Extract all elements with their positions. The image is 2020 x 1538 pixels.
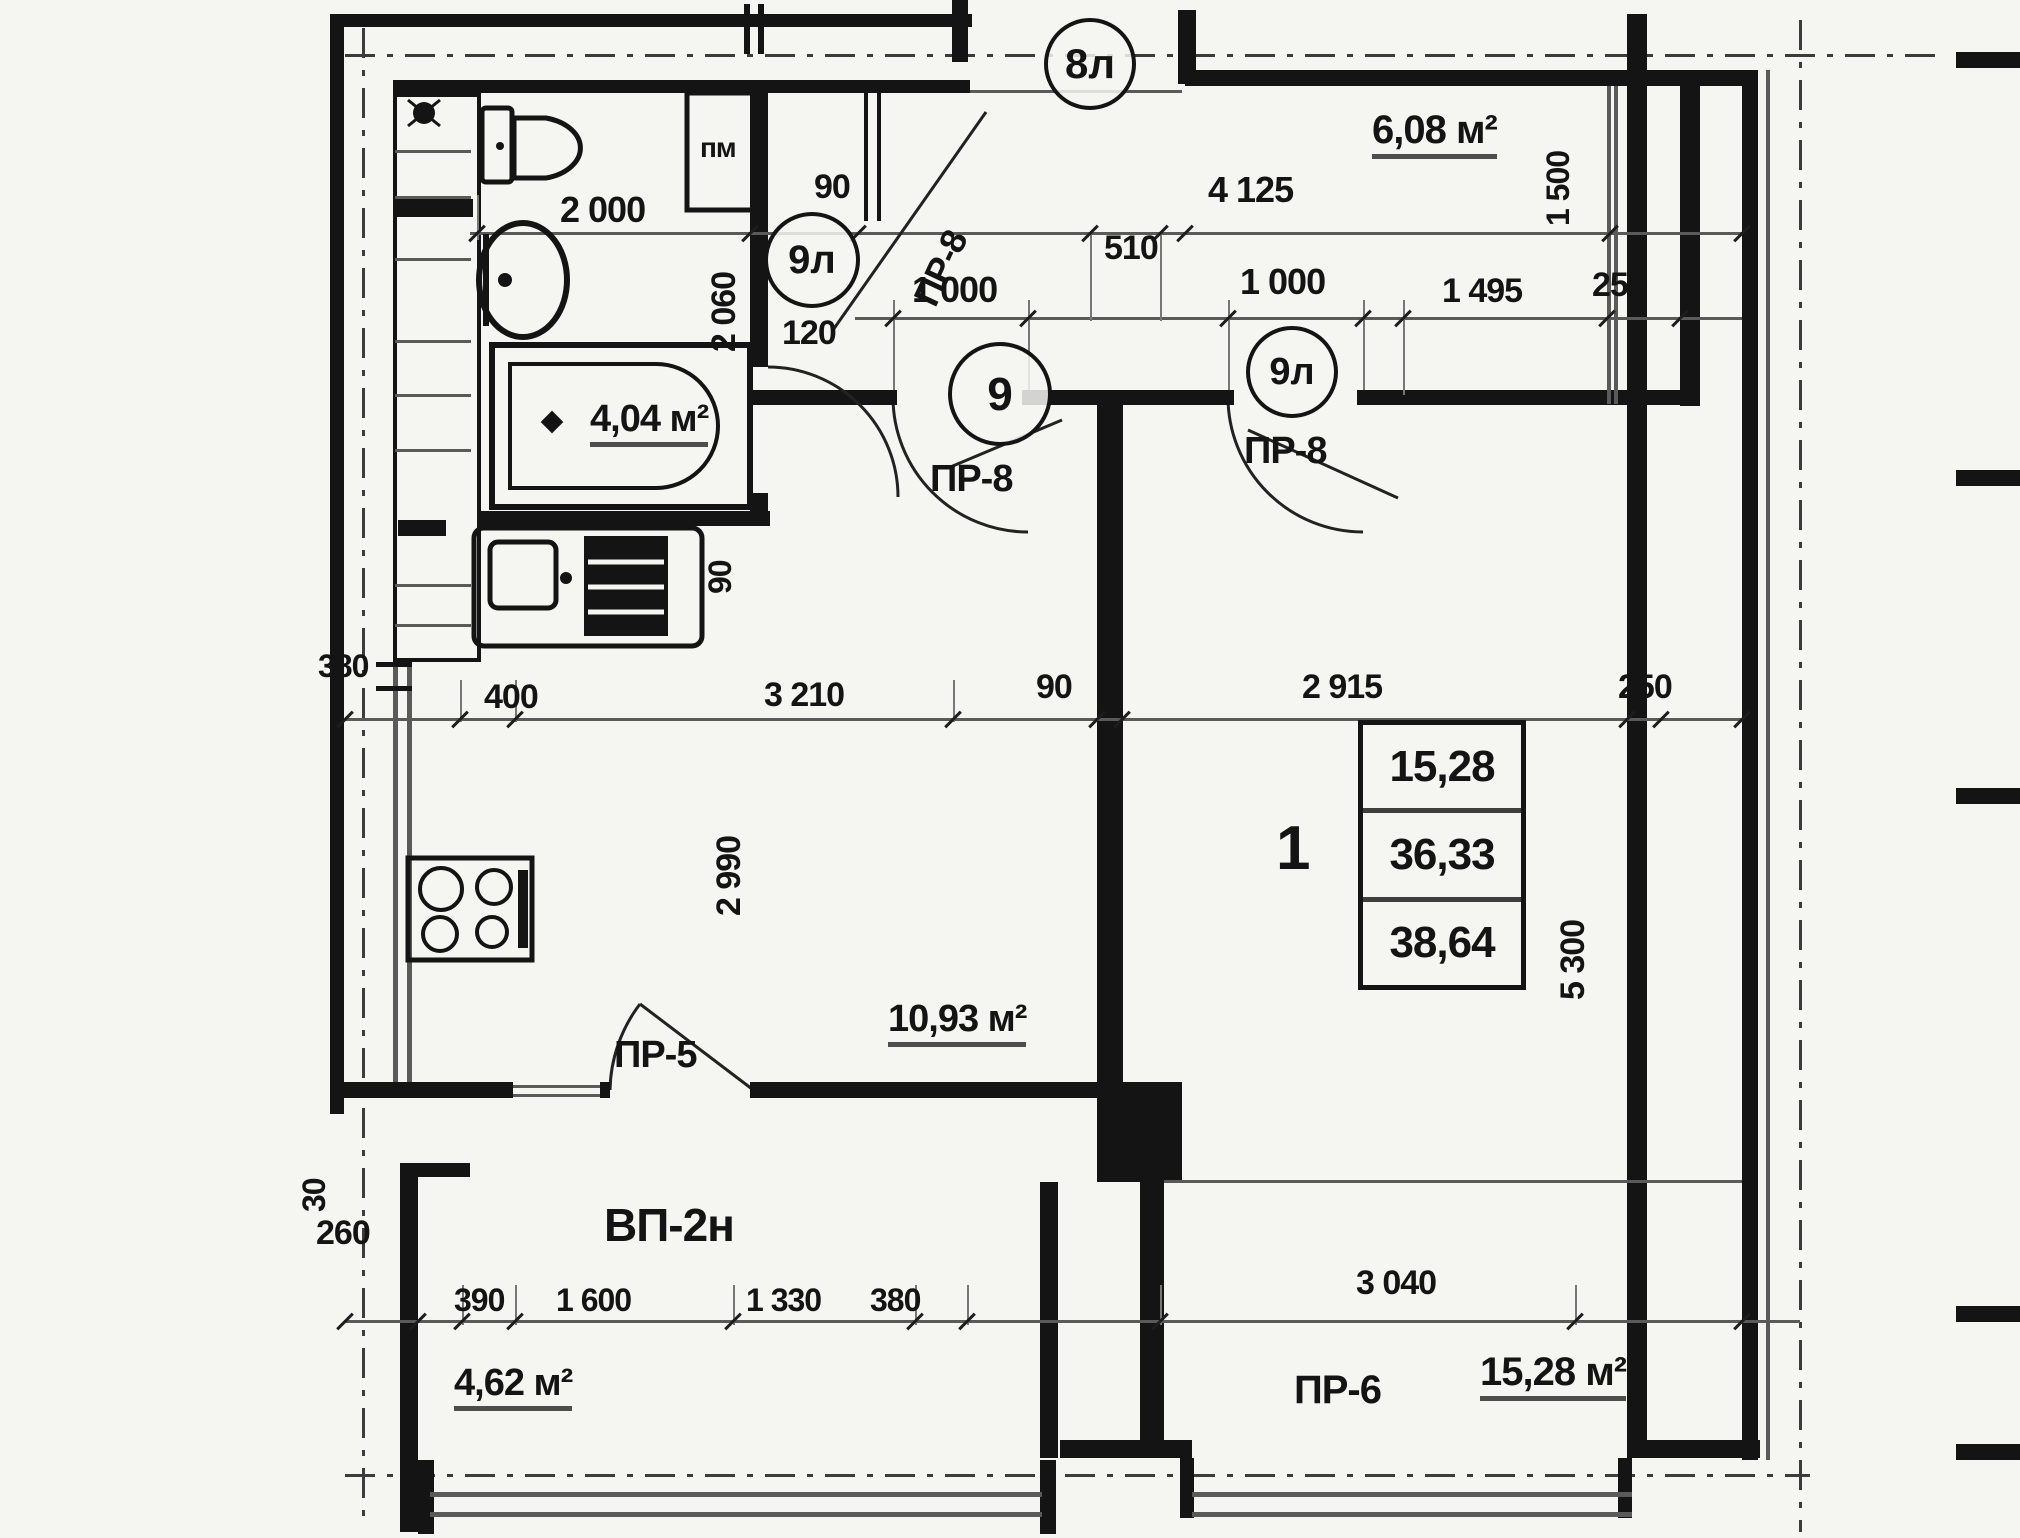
bath-door-arc [768, 367, 898, 497]
dim-90-mid: 90 [1036, 670, 1072, 704]
axis-label: 9л [1269, 351, 1314, 394]
dim-510: 510 [1104, 231, 1158, 265]
dim-30: 30 [298, 1178, 330, 1212]
area-table-overall: 38,64 [1363, 902, 1521, 985]
door-pr6-label: ПР-6 [1294, 1370, 1381, 1410]
dim-380-left: 380 [318, 650, 368, 682]
dim-3040: 3 040 [1356, 1266, 1436, 1300]
area-table-total: 36,33 [1363, 813, 1521, 901]
vent-shaft-icon [408, 100, 440, 126]
floor-plan: 8л 9л 9 9л 2 000 90 4 125 510 1 000 1 00… [0, 0, 2020, 1538]
dim-250-mid: 250 [1618, 670, 1672, 704]
door-arcs [610, 112, 1398, 1092]
dim-250-top: 250 [1592, 268, 1646, 302]
balcony-type-label: ВП-2н [604, 1202, 734, 1248]
dim-380-b: 380 [870, 1284, 920, 1316]
area-balcony: 4,62 м² [454, 1364, 572, 1411]
axis-circle-9l-room: 9л [1246, 326, 1338, 418]
area-table: 15,28 36,33 38,64 [1358, 720, 1526, 990]
dim-2915: 2 915 [1302, 670, 1382, 704]
area-room: 15,28 м² [1480, 1352, 1626, 1401]
dim-3210: 3 210 [764, 678, 844, 712]
area-bathroom: 4,04 м² [590, 400, 708, 447]
washing-machine-label: пм [700, 134, 736, 162]
sink-icon [479, 223, 567, 337]
area-loggia: 6,08 м² [1372, 110, 1497, 159]
area-table-living: 15,28 [1363, 725, 1521, 813]
dim-400: 400 [484, 680, 538, 714]
dim-1000-right: 1 000 [1240, 264, 1325, 300]
stove-icon [408, 858, 532, 960]
dim-1330: 1 330 [746, 1284, 821, 1316]
dim-2060: 2 060 [707, 272, 741, 352]
axis-label: 8л [1065, 40, 1115, 88]
dim-2000: 2 000 [560, 192, 645, 228]
dim-4125: 4 125 [1208, 172, 1293, 208]
dim-90-top: 90 [814, 170, 850, 204]
dim-90-sink: 90 [704, 560, 736, 594]
door-pr8-room-label: ПР-8 [1244, 432, 1326, 470]
axis-label: 9л [788, 238, 836, 283]
dim-260: 260 [316, 1216, 370, 1250]
dim-1495: 1 495 [1442, 274, 1522, 308]
dim-1500: 1 500 [1542, 151, 1574, 226]
door-pr8-hall-label: ПР-8 [930, 460, 1012, 498]
door-pr5-label: ПР-5 [614, 1036, 696, 1074]
area-kitchen: 10,93 м² [888, 1000, 1026, 1047]
dim-390: 390 [454, 1284, 504, 1316]
kitchen-sink-icon [474, 528, 702, 646]
dim-120: 120 [782, 316, 836, 350]
dim-2990: 2 990 [712, 836, 746, 916]
axis-circle-9l-bath: 9л [764, 212, 860, 308]
dim-1600: 1 600 [556, 1284, 631, 1316]
axis-label: 9 [987, 367, 1013, 421]
room-number: 1 [1276, 818, 1309, 880]
dim-5300: 5 300 [1556, 920, 1590, 1000]
toilet-icon [482, 108, 580, 182]
fixtures-layer [0, 0, 2020, 1538]
axis-circle-8l: 8л [1044, 18, 1136, 110]
axis-circle-9: 9 [948, 342, 1052, 446]
